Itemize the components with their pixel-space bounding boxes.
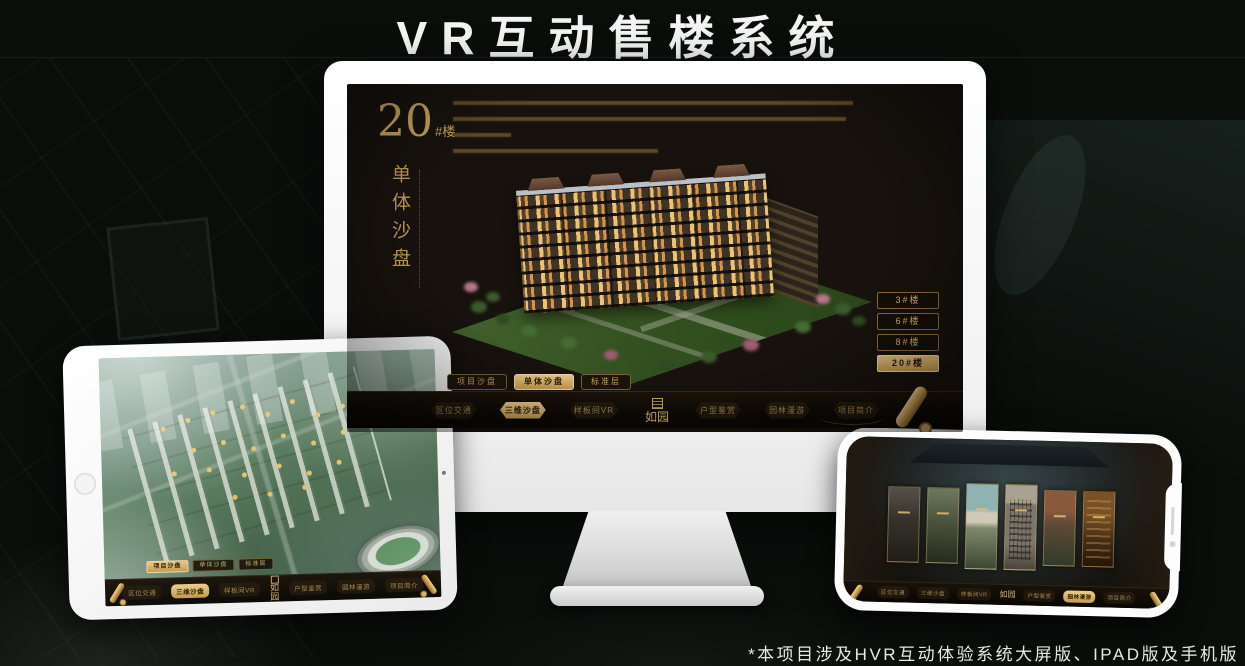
seal-icon (652, 398, 663, 409)
nav-item-garden-roam[interactable]: 园林漫游 (337, 579, 375, 594)
phone-notch (1164, 482, 1182, 570)
gallery-card-building[interactable] (1004, 484, 1038, 571)
nav-item-floorplans[interactable]: 户型鉴赏 (289, 580, 327, 595)
nav-item-garden-roam[interactable]: 园林漫游 (761, 402, 813, 419)
scroll-icon[interactable] (420, 572, 437, 598)
nav-item-showroom-vr[interactable]: 样板间VR (566, 402, 622, 419)
brand-logo-text: 如园 (645, 411, 669, 423)
shelf-lines (1086, 500, 1111, 559)
composite-stage: VR互动售楼系统 20#楼 单体沙盘 (0, 0, 1245, 666)
footnote: *本项目涉及HVR互动体验系统大屏版、IPAD版及手机版 (748, 640, 1239, 665)
scroll-icon[interactable] (883, 384, 947, 432)
tablet-screen: 项目沙盘 单体沙盘 标准层 区位交通 三维沙盘 样板间VR 如园 户型鉴赏 园林… (99, 349, 442, 606)
nav-item-location[interactable]: 区位交通 (428, 402, 480, 419)
description-line (453, 101, 853, 105)
monitor-stand-neck (562, 511, 752, 589)
brand-logo-text: 如园 (999, 591, 1015, 599)
brand-logo[interactable]: 如园 (270, 575, 280, 602)
phone-device: 区位交通 三维沙盘 样板间VR 如园 户型鉴赏 园林漫游 项目简介 (834, 427, 1182, 618)
nav-item-showroom-vr[interactable]: 样板间VR (957, 588, 992, 601)
window-grid (1009, 499, 1032, 560)
scroll-icon[interactable] (848, 582, 865, 608)
roof-cap (583, 172, 628, 187)
building-headline: 20#楼 (377, 100, 455, 144)
tab-project-sandbox[interactable]: 项目沙盘 (447, 374, 507, 390)
tab-standard-floor[interactable]: 标准层 (581, 374, 631, 390)
tab-single-sandbox[interactable]: 单体沙盘 (514, 374, 574, 390)
headline-subtitle: 单体沙盘 (387, 164, 414, 276)
headline-rule (419, 170, 420, 288)
building-front-face (516, 173, 774, 313)
garden-path (558, 306, 755, 374)
nav-item-3d-sandbox[interactable]: 三维沙盘 (171, 583, 209, 598)
scroll-icon[interactable] (110, 581, 127, 607)
description-line (453, 149, 658, 153)
floor-button-8[interactable]: 8#楼 (877, 334, 939, 351)
nav-item-location[interactable]: 区位交通 (877, 586, 909, 599)
nav-item-3d-sandbox[interactable]: 三维沙盘 (497, 402, 549, 419)
nav-item-floorplans[interactable]: 户型鉴赏 (1023, 589, 1055, 602)
scroll-icon[interactable] (1148, 589, 1165, 609)
camera-dot (442, 471, 446, 475)
nav-item-garden-roam[interactable]: 园林漫游 (1063, 590, 1095, 603)
tab-project-sandbox[interactable]: 项目沙盘 (146, 560, 188, 573)
gallery-card-autumn-garden[interactable] (1043, 490, 1077, 567)
gallery-card-garden[interactable] (965, 483, 999, 570)
gallery-card-courtyard[interactable] (926, 487, 960, 564)
nav-item-floorplans[interactable]: 户型鉴赏 (692, 402, 744, 419)
panorama-gallery (887, 481, 1116, 573)
phone-screen: 区位交通 三维沙盘 样板间VR 如园 户型鉴赏 园林漫游 项目简介 (843, 436, 1173, 609)
description-line (453, 117, 846, 121)
floor-selector: 3#楼 6#楼 8#楼 20#楼 (877, 292, 939, 372)
page-title: VR互动售楼系统 (0, 2, 1245, 68)
floor-button-20[interactable]: 20#楼 (877, 355, 939, 372)
nav-item-showroom-vr[interactable]: 样板间VR (219, 582, 260, 597)
nav-item-3d-sandbox[interactable]: 三维沙盘 (917, 587, 949, 600)
monitor-stand-base (550, 586, 764, 606)
tablet-device: 项目沙盘 单体沙盘 标准层 区位交通 三维沙盘 样板间VR 如园 户型鉴赏 园林… (62, 336, 457, 621)
nav-item-project-intro[interactable]: 项目简介 (1103, 591, 1135, 604)
home-button[interactable] (74, 473, 97, 496)
roof-cap (523, 176, 568, 191)
background-plaque (106, 217, 219, 341)
tab-standard-floor[interactable]: 标准层 (238, 558, 273, 571)
cloud-flourish (817, 406, 887, 425)
building-unit: #楼 (435, 124, 455, 139)
floor-button-6[interactable]: 6#楼 (877, 313, 939, 330)
speaker-slit (1171, 506, 1175, 534)
brand-logo-text: 如园 (270, 584, 280, 602)
description-line (453, 133, 511, 137)
nav-item-location[interactable]: 区位交通 (123, 585, 161, 600)
tab-single-sandbox[interactable]: 单体沙盘 (192, 559, 234, 572)
building-number: 20 (377, 96, 433, 147)
nav-item-project-intro[interactable]: 项目简介 (385, 577, 423, 592)
building-3d-model[interactable] (442, 154, 887, 399)
view-tabs: 项目沙盘 单体沙盘 标准层 (447, 374, 631, 390)
gallery-card-study[interactable] (1082, 491, 1116, 568)
gallery-card-interior[interactable] (887, 486, 921, 563)
seal-icon (270, 575, 278, 583)
brand-logo[interactable]: 如园 (645, 398, 669, 423)
brand-logo[interactable]: 如园 (999, 591, 1015, 599)
floor-button-3[interactable]: 3#楼 (877, 292, 939, 309)
roof-cap (645, 168, 690, 183)
description-text-lines (453, 101, 853, 165)
roof-cap (709, 163, 754, 178)
camera-dot (1169, 540, 1175, 546)
